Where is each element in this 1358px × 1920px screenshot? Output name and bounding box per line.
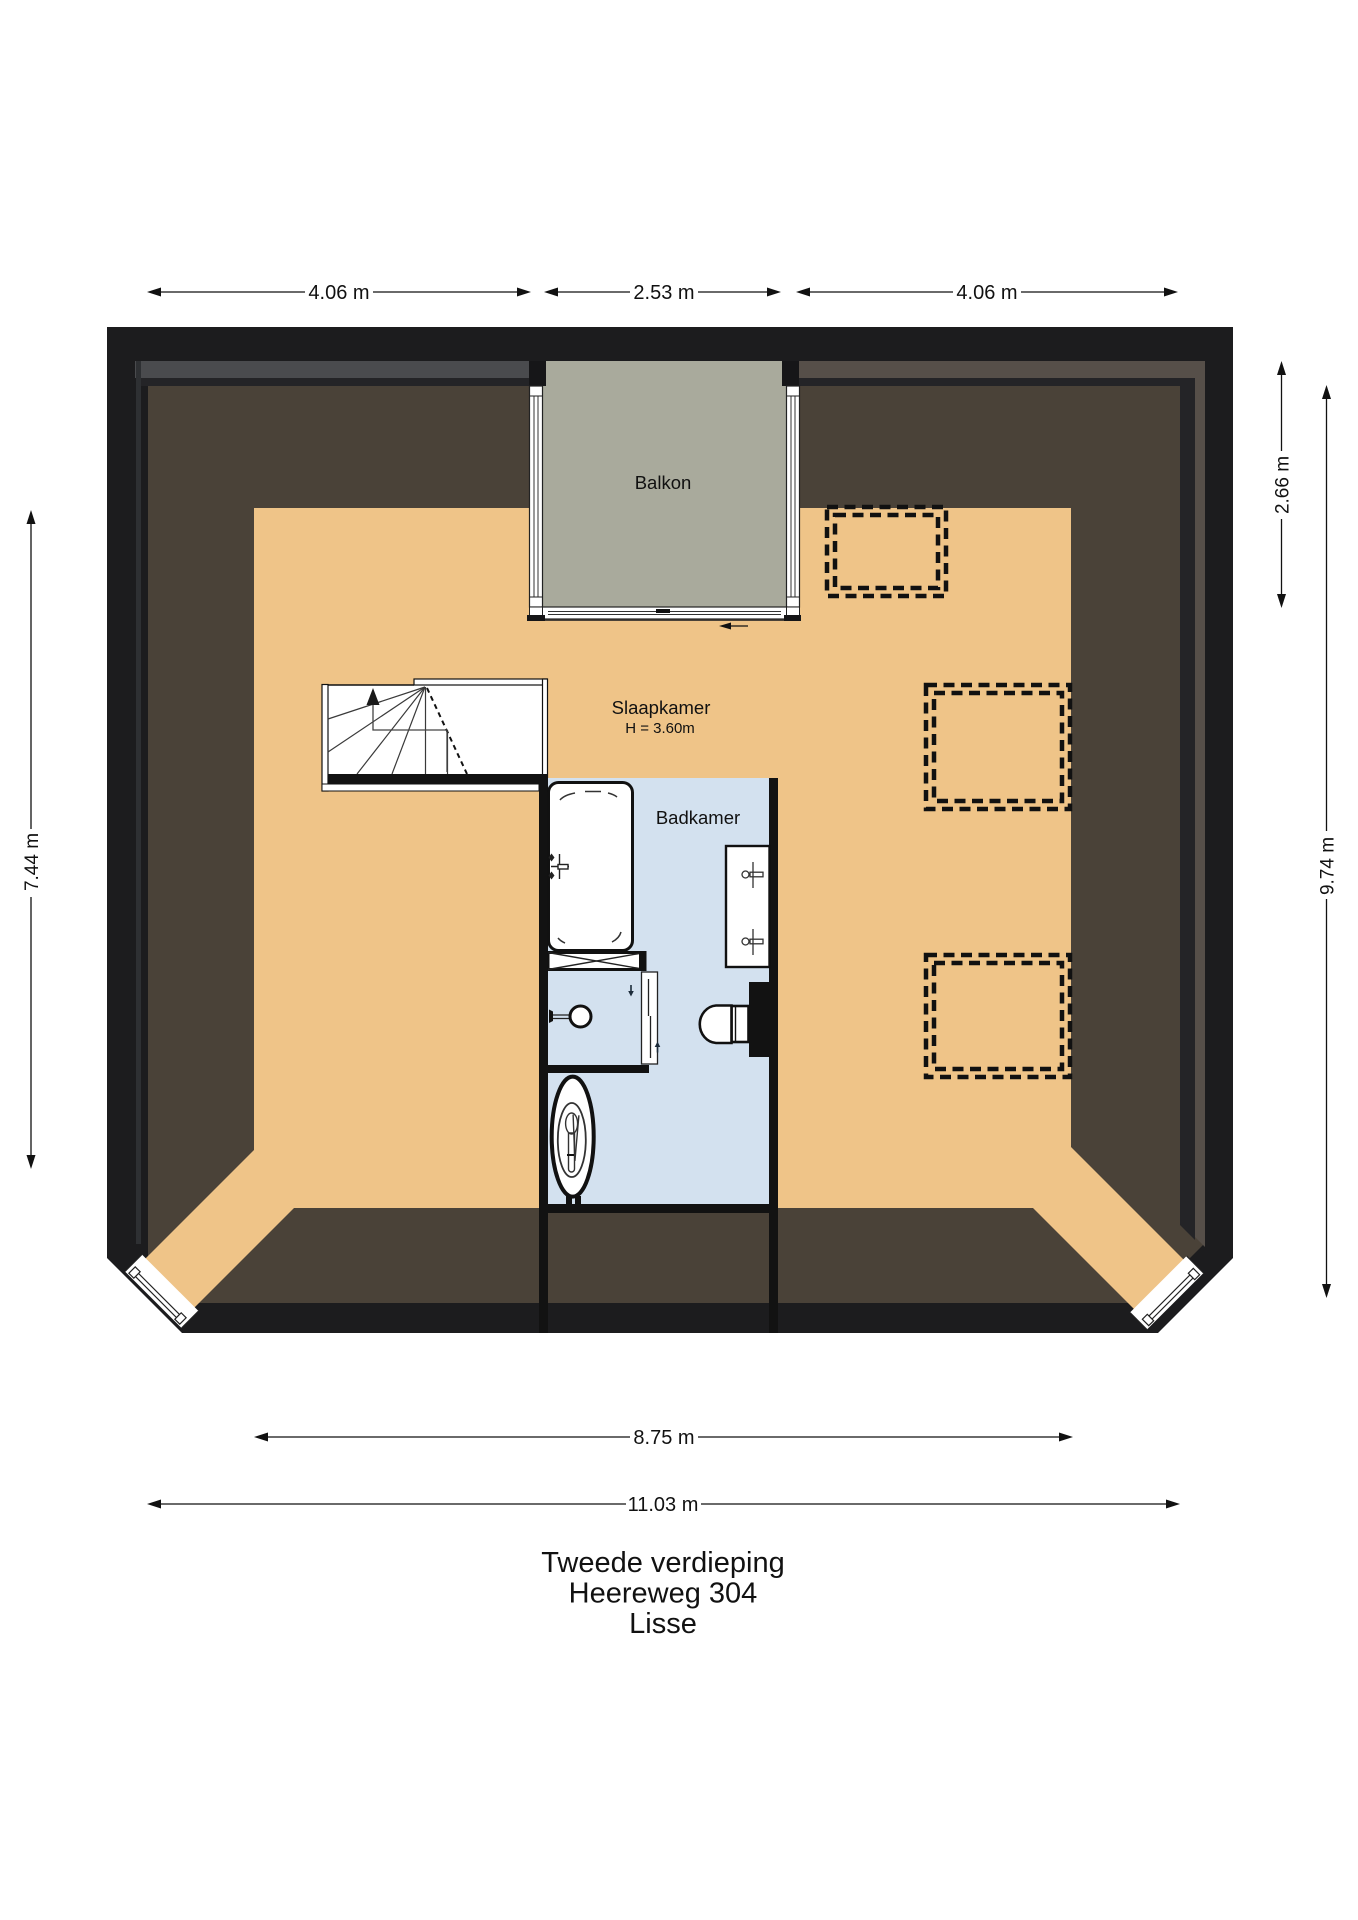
svg-text:7.44 m: 7.44 m [22, 833, 43, 891]
svg-text:2.66 m: 2.66 m [1273, 456, 1294, 514]
svg-text:4.06 m: 4.06 m [956, 282, 1017, 304]
svg-text:2.53 m: 2.53 m [633, 282, 694, 304]
svg-text:8.75 m: 8.75 m [633, 1427, 694, 1449]
svg-text:Tweede verdieping: Tweede verdieping [541, 1547, 784, 1579]
svg-text:Badkamer: Badkamer [656, 807, 740, 828]
svg-text:9.74 m: 9.74 m [1318, 837, 1339, 895]
svg-text:4.06 m: 4.06 m [308, 282, 369, 304]
svg-text:11.03 m: 11.03 m [628, 1494, 699, 1516]
svg-text:Lisse: Lisse [629, 1608, 697, 1640]
svg-text:Heereweg 304: Heereweg 304 [569, 1578, 758, 1610]
svg-text:H = 3.60m: H = 3.60m [625, 720, 695, 737]
svg-text:Balkon: Balkon [635, 472, 692, 493]
svg-text:Slaapkamer: Slaapkamer [612, 697, 711, 718]
